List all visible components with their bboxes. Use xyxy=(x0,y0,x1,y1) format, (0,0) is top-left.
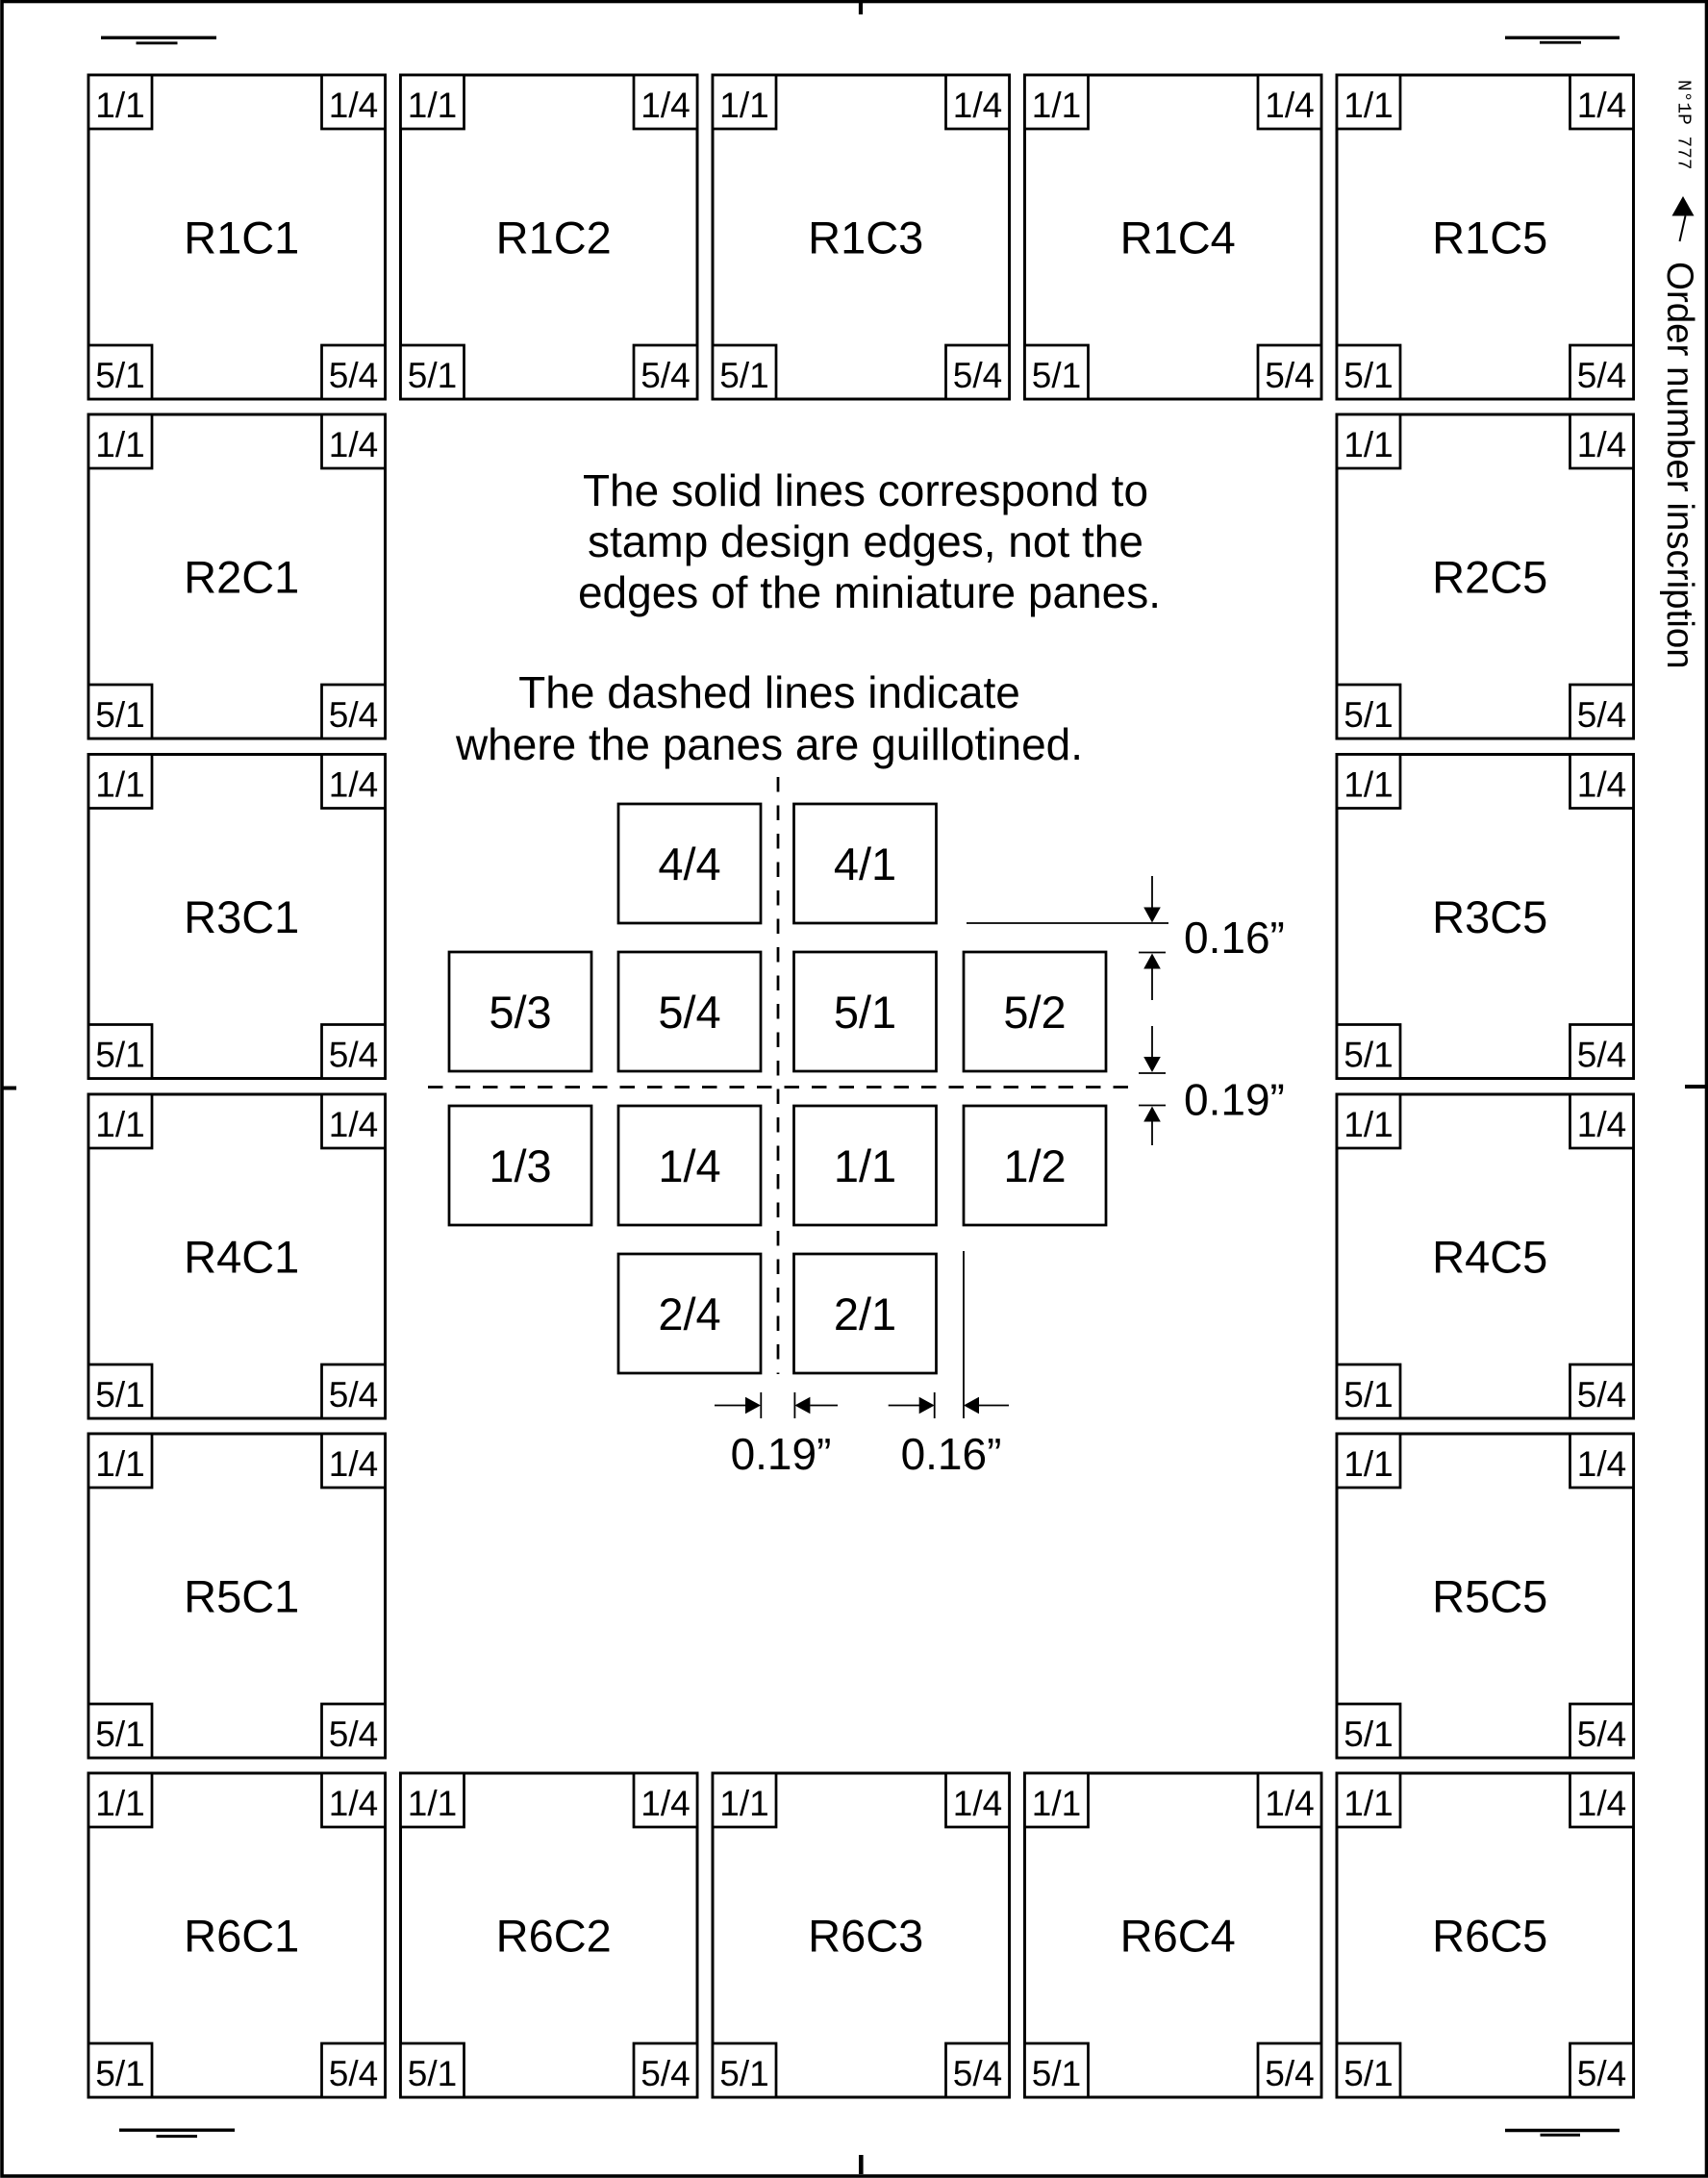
svg-text:5/4: 5/4 xyxy=(1577,356,1626,395)
svg-text:5/4: 5/4 xyxy=(329,356,378,395)
svg-text:1/1: 1/1 xyxy=(95,1444,144,1484)
svg-text:1/4: 1/4 xyxy=(640,1784,690,1823)
svg-text:The dashed lines indicate: The dashed lines indicate xyxy=(518,667,1020,717)
svg-text:1/1: 1/1 xyxy=(95,86,144,125)
svg-text:1/4: 1/4 xyxy=(329,765,378,805)
svg-text:1/4: 1/4 xyxy=(1577,1784,1626,1823)
svg-text:5/4: 5/4 xyxy=(1577,695,1626,735)
svg-text:0.16”: 0.16” xyxy=(1184,913,1285,963)
svg-text:1/1: 1/1 xyxy=(408,86,457,125)
svg-text:5/1: 5/1 xyxy=(1032,2054,1081,2093)
svg-text:1/4: 1/4 xyxy=(658,1140,720,1191)
svg-text:5/4: 5/4 xyxy=(1265,2054,1314,2093)
svg-text:1/4: 1/4 xyxy=(1577,1105,1626,1144)
svg-text:1/1: 1/1 xyxy=(719,86,768,125)
svg-text:5/1: 5/1 xyxy=(719,356,768,395)
svg-text:1/2: 1/2 xyxy=(1003,1140,1066,1191)
svg-text:2/1: 2/1 xyxy=(834,1289,896,1339)
svg-text:5/4: 5/4 xyxy=(329,695,378,735)
svg-text:5/1: 5/1 xyxy=(1344,1715,1393,1754)
svg-text:5/4: 5/4 xyxy=(1265,356,1314,395)
svg-text:R1C4: R1C4 xyxy=(1120,213,1236,263)
svg-text:1/4: 1/4 xyxy=(1577,86,1626,125)
svg-text:5/1: 5/1 xyxy=(95,1715,144,1754)
svg-text:stamp design edges, not the: stamp design edges, not the xyxy=(588,516,1143,566)
svg-text:R1C2: R1C2 xyxy=(496,213,612,263)
svg-text:4/4: 4/4 xyxy=(658,839,720,889)
svg-text:5/1: 5/1 xyxy=(95,1036,144,1075)
svg-text:5/1: 5/1 xyxy=(1344,1036,1393,1075)
svg-text:1/1: 1/1 xyxy=(408,1784,457,1823)
svg-text:5/4: 5/4 xyxy=(1577,1715,1626,1754)
svg-text:1/4: 1/4 xyxy=(953,86,1002,125)
svg-text:where the panes are guillotine: where the panes are guillotined. xyxy=(455,719,1083,769)
svg-text:5/4: 5/4 xyxy=(329,2054,378,2093)
svg-text:5/4: 5/4 xyxy=(329,1715,378,1754)
svg-text:5/1: 5/1 xyxy=(1344,695,1393,735)
svg-text:5/4: 5/4 xyxy=(329,1375,378,1414)
svg-text:5/4: 5/4 xyxy=(658,987,720,1038)
svg-text:1/1: 1/1 xyxy=(95,765,144,805)
svg-text:R3C1: R3C1 xyxy=(184,891,299,942)
svg-text:R6C5: R6C5 xyxy=(1432,1911,1547,1962)
svg-text:1/1: 1/1 xyxy=(1344,425,1393,464)
svg-text:R1C5: R1C5 xyxy=(1432,213,1547,263)
svg-text:5/2: 5/2 xyxy=(1003,987,1066,1038)
svg-text:5/3: 5/3 xyxy=(489,987,551,1038)
svg-text:4/1: 4/1 xyxy=(834,839,896,889)
svg-text:5/1: 5/1 xyxy=(95,2054,144,2093)
svg-text:R3C5: R3C5 xyxy=(1432,891,1547,942)
svg-text:R4C1: R4C1 xyxy=(184,1232,299,1283)
svg-text:0.19”: 0.19” xyxy=(1184,1075,1285,1125)
svg-text:5/1: 5/1 xyxy=(1344,1375,1393,1414)
svg-text:Order number inscription: Order number inscription xyxy=(1659,262,1700,669)
svg-text:1/1: 1/1 xyxy=(1344,765,1393,805)
svg-text:1/1: 1/1 xyxy=(1344,86,1393,125)
svg-text:R6C3: R6C3 xyxy=(808,1911,923,1962)
svg-text:1/1: 1/1 xyxy=(1344,1105,1393,1144)
svg-text:1/1: 1/1 xyxy=(95,1784,144,1823)
svg-text:5/4: 5/4 xyxy=(329,1036,378,1075)
svg-text:5/4: 5/4 xyxy=(1577,1036,1626,1075)
svg-text:R5C1: R5C1 xyxy=(184,1571,299,1622)
svg-text:R5C5: R5C5 xyxy=(1432,1571,1547,1622)
svg-text:5/4: 5/4 xyxy=(1577,2054,1626,2093)
svg-text:1/1: 1/1 xyxy=(1032,1784,1081,1823)
svg-text:1/3: 1/3 xyxy=(489,1140,551,1191)
svg-text:5/1: 5/1 xyxy=(95,356,144,395)
svg-text:1/1: 1/1 xyxy=(95,425,144,464)
svg-text:1/4: 1/4 xyxy=(640,86,690,125)
svg-text:R1C3: R1C3 xyxy=(808,213,923,263)
svg-text:R6C2: R6C2 xyxy=(496,1911,612,1962)
svg-text:1/4: 1/4 xyxy=(329,1105,378,1144)
svg-text:5/4: 5/4 xyxy=(953,2054,1002,2093)
svg-text:1/4: 1/4 xyxy=(1265,86,1314,125)
svg-text:5/1: 5/1 xyxy=(408,356,457,395)
svg-text:5/4: 5/4 xyxy=(953,356,1002,395)
svg-text:1/1: 1/1 xyxy=(1344,1784,1393,1823)
svg-text:1/4: 1/4 xyxy=(329,1784,378,1823)
svg-text:R2C1: R2C1 xyxy=(184,552,299,603)
svg-text:5/1: 5/1 xyxy=(408,2054,457,2093)
svg-text:2/4: 2/4 xyxy=(658,1289,720,1339)
svg-text:5/1: 5/1 xyxy=(1344,2054,1393,2093)
svg-text:1/4: 1/4 xyxy=(953,1784,1002,1823)
svg-text:R1C1: R1C1 xyxy=(184,213,299,263)
svg-text:5/4: 5/4 xyxy=(640,356,690,395)
svg-text:5/4: 5/4 xyxy=(640,2054,690,2093)
svg-text:edges of the miniature panes.: edges of the miniature panes. xyxy=(578,567,1161,617)
svg-text:N°1P 777: N°1P 777 xyxy=(1673,80,1695,170)
svg-text:The solid lines correspond to: The solid lines correspond to xyxy=(583,465,1148,515)
svg-text:1/1: 1/1 xyxy=(1344,1444,1393,1484)
svg-text:5/1: 5/1 xyxy=(95,695,144,735)
svg-text:R6C4: R6C4 xyxy=(1120,1911,1236,1962)
svg-text:1/1: 1/1 xyxy=(95,1105,144,1144)
svg-text:1/4: 1/4 xyxy=(1265,1784,1314,1823)
svg-text:5/1: 5/1 xyxy=(1032,356,1081,395)
svg-text:R4C5: R4C5 xyxy=(1432,1232,1547,1283)
svg-text:R2C5: R2C5 xyxy=(1432,552,1547,603)
svg-text:1/4: 1/4 xyxy=(1577,425,1626,464)
svg-text:1/1: 1/1 xyxy=(1032,86,1081,125)
svg-text:5/1: 5/1 xyxy=(1344,356,1393,395)
svg-text:0.16”: 0.16” xyxy=(901,1429,1002,1479)
svg-text:1/1: 1/1 xyxy=(834,1140,896,1191)
svg-text:5/1: 5/1 xyxy=(95,1375,144,1414)
svg-text:1/4: 1/4 xyxy=(1577,1444,1626,1484)
svg-text:5/1: 5/1 xyxy=(834,987,896,1038)
svg-text:0.19”: 0.19” xyxy=(731,1429,832,1479)
svg-text:5/1: 5/1 xyxy=(719,2054,768,2093)
svg-text:1/4: 1/4 xyxy=(329,86,378,125)
svg-text:5/4: 5/4 xyxy=(1577,1375,1626,1414)
svg-text:1/1: 1/1 xyxy=(719,1784,768,1823)
svg-text:1/4: 1/4 xyxy=(329,1444,378,1484)
svg-text:1/4: 1/4 xyxy=(1577,765,1626,805)
svg-text:1/4: 1/4 xyxy=(329,425,378,464)
svg-text:R6C1: R6C1 xyxy=(184,1911,299,1962)
